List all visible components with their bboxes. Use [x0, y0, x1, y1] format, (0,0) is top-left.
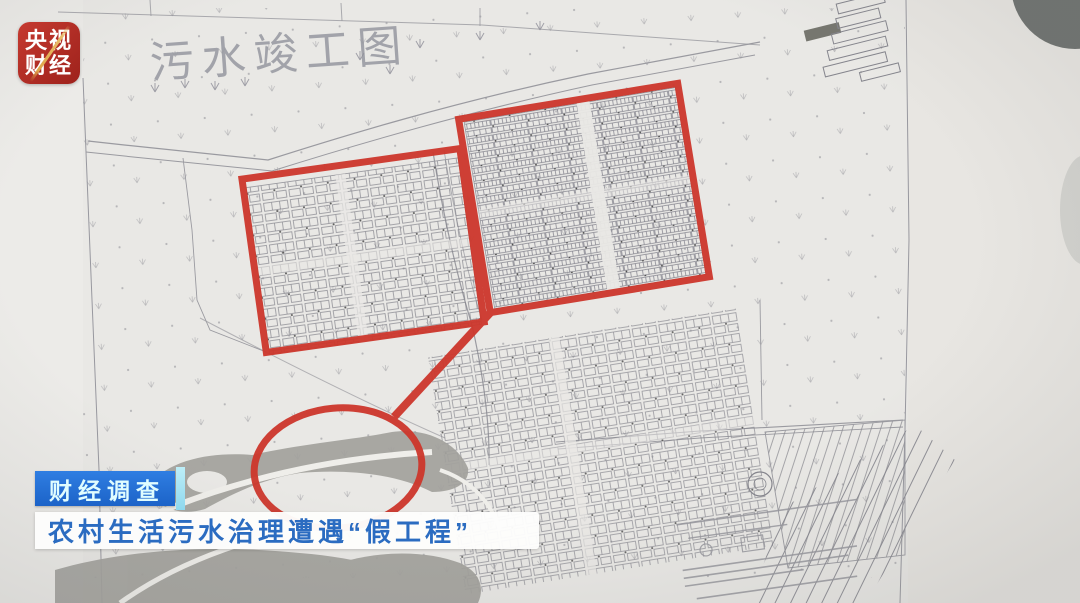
cctv-finance-logo: 央视 财经 — [18, 22, 80, 84]
badge-accent-bar — [176, 467, 185, 510]
tv-frame: 污水竣工图 — [0, 0, 1080, 603]
headline-caption: 农村生活污水治理遭遇“假工程” — [35, 512, 539, 549]
program-badge: 财经调查 — [35, 471, 175, 506]
